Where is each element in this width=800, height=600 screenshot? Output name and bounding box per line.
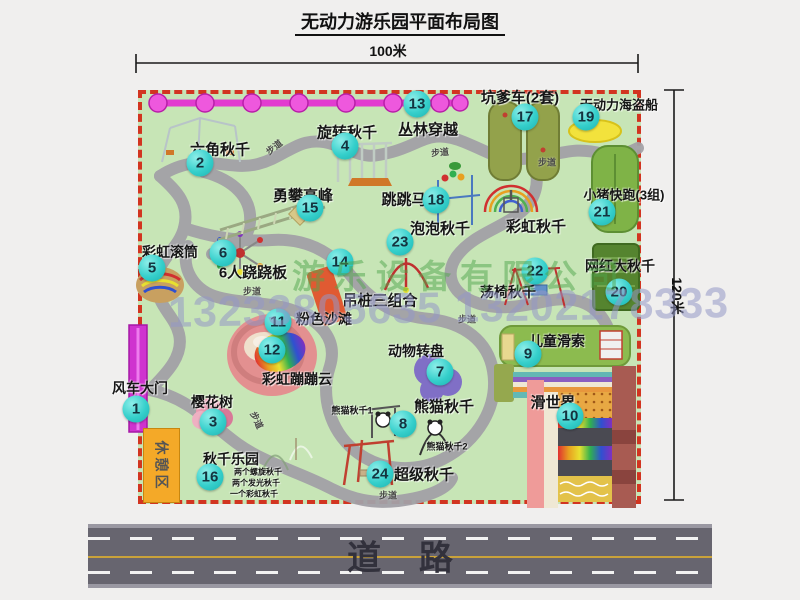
marker-21: 21 [589, 199, 616, 226]
map-sublabel-0: 彩虹秋千 [506, 216, 566, 237]
map-sublabel-5: 一个彩虹秋千 [230, 489, 278, 500]
map-sublabel-3: 两个螺旋秋千 [234, 467, 282, 478]
attraction-label-18: 跳跳马 [381, 189, 426, 210]
map-sublabel-2: 熊猫秋千2 [426, 440, 467, 453]
attraction-label-1: 风车大门 [112, 378, 168, 398]
page-title-text: 无动力游乐园平面布局图 [295, 12, 505, 36]
marker-16: 16 [197, 464, 224, 491]
attraction-label-23: 泡泡秋千 [410, 218, 470, 239]
marker-15: 15 [297, 195, 324, 222]
attraction-label-13: 丛林穿越 [398, 119, 458, 140]
marker-1: 1 [123, 396, 150, 423]
watermark-phone: 13233805635 13202178333 [168, 279, 730, 338]
road: 道 路 [88, 524, 712, 588]
marker-19: 19 [573, 104, 600, 131]
marker-12: 12 [259, 337, 286, 364]
marker-2: 2 [187, 150, 214, 177]
park-layout-map: 无动力游乐园平面布局图 [0, 0, 800, 600]
attraction-label-8: 熊猫秋千 [414, 396, 474, 417]
marker-10: 10 [557, 403, 584, 430]
rest-area: 休憩区 [143, 428, 180, 503]
marker-5: 5 [139, 255, 166, 282]
marker-18: 18 [423, 187, 450, 214]
marker-3: 3 [200, 409, 227, 436]
map-sublabel-4: 两个发光秋千 [232, 478, 280, 489]
marker-4: 4 [332, 133, 359, 160]
attraction-label-12: 彩虹蹦蹦云 [262, 369, 332, 389]
walkway-label-1: 步道 [430, 145, 449, 160]
map-sublabel-1: 熊猫秋千1 [331, 404, 372, 417]
attraction-label-24: 超级秋千 [394, 464, 454, 485]
page-title: 无动力游乐园平面布局图 [0, 8, 800, 34]
dimension-top-label: 100米 [369, 41, 406, 61]
marker-7: 7 [427, 359, 454, 386]
walkway-label-2: 步道 [538, 156, 556, 169]
marker-6: 6 [210, 240, 237, 267]
marker-13: 13 [404, 91, 431, 118]
marker-24: 24 [367, 461, 394, 488]
marker-17: 17 [512, 104, 539, 131]
marker-9: 9 [515, 341, 542, 368]
walkway-label-5: 步道 [379, 489, 397, 502]
road-label: 道 路 [347, 531, 453, 580]
marker-8: 8 [390, 411, 417, 438]
rest-area-label: 休憩区 [152, 440, 172, 491]
